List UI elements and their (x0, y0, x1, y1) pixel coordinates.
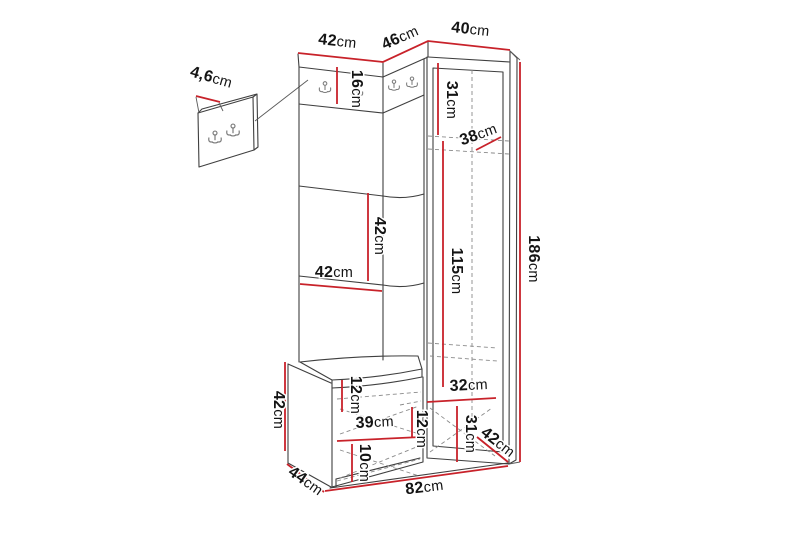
furniture-dimension-diagram: 42cm46cm40cm4,6cm16cm31cm38cm42cm42cm115… (0, 0, 800, 533)
dim-label-cabinet-inner-width: 38cm (458, 120, 500, 149)
dim-label-bench-height: 42cm (270, 391, 287, 429)
diagram-canvas: 42cm46cm40cm4,6cm16cm31cm38cm42cm42cm115… (0, 0, 800, 533)
dim-label-bench-shelf-width: 39cm (355, 413, 394, 432)
dim-line-square-width (300, 284, 382, 291)
dim-line-cabinet-bottom-width (427, 398, 496, 402)
cabinet-dim-connectors (509, 51, 520, 464)
coat-hook-icon (319, 82, 330, 93)
dim-line-panel-thickness (196, 96, 220, 102)
dim-label-top-width-left: 42cm (318, 31, 358, 52)
corner-angled-panel (383, 42, 428, 360)
dim-label-top-width-middle: 46cm (379, 22, 421, 53)
left-wall-panel (298, 54, 383, 362)
dim-label-panel-square-height: 42cm (371, 217, 388, 255)
coat-hook-icon (227, 124, 240, 136)
dim-label-panel-thickness: 4,6cm (188, 64, 234, 92)
dimension-labels: 42cm46cm40cm4,6cm16cm31cm38cm42cm42cm115… (188, 19, 542, 499)
dim-label-total-width: 82cm (404, 477, 444, 499)
coat-hook-icon (209, 131, 222, 143)
dim-label-hook-strip-height: 16cm (348, 70, 365, 108)
corner-hook-divider (383, 95, 424, 113)
coat-hook-icon (389, 80, 400, 90)
dim-label-panel-square-width: 42cm (315, 264, 353, 281)
dim-label-cabinet-top-section: 31cm (443, 81, 460, 119)
hook-strip-divider (299, 104, 383, 113)
bench-front-face (332, 377, 423, 487)
corner-seams (383, 194, 424, 287)
dim-label-cushion-section: 12cm (347, 376, 364, 414)
dim-label-total-height: 186cm (525, 235, 542, 283)
coat-hook-icon (407, 77, 418, 87)
dim-label-bench-bottom-shelf: 10cm (356, 444, 373, 482)
wall-hook-panel-inset (196, 80, 308, 167)
inset-panel-thickness (198, 94, 258, 150)
dim-label-cabinet-bottom-sect: 31cm (462, 415, 479, 453)
bottom-shelf-hidden (428, 343, 497, 361)
dim-line-bench-shelf-width (337, 437, 421, 441)
dim-label-bench-depth: 44cm (285, 463, 326, 499)
dim-label-top-width-right: 40cm (451, 19, 491, 40)
dim-label-cabinet-bottom-width: 32cm (449, 376, 488, 395)
inset-pointer-line (255, 80, 308, 121)
dim-label-bench-right-spacing: 12cm (413, 410, 430, 448)
dim-label-door-height: 115cm (448, 248, 465, 295)
